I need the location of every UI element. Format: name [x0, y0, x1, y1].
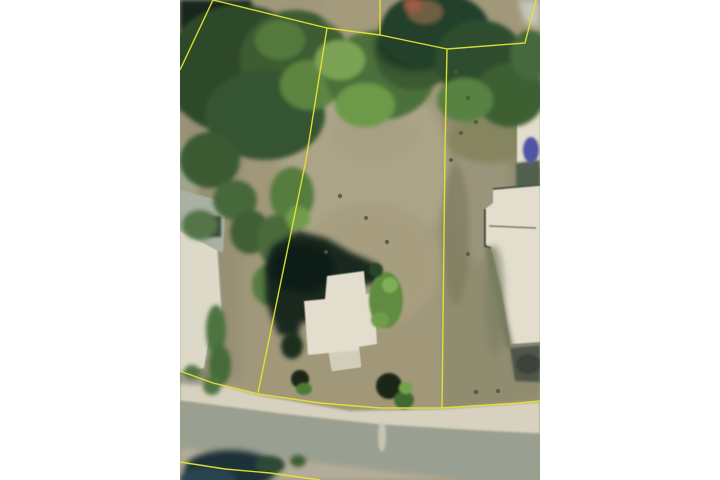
right-roof-gap-shadow — [516, 160, 540, 188]
aerial-photo[interactable] — [180, 0, 540, 480]
letterbox-right — [540, 0, 720, 480]
blue-object — [523, 137, 539, 163]
aerial-photo-canvas — [180, 0, 540, 480]
letterbox-left — [0, 0, 180, 480]
listing-photo-page — [0, 0, 720, 480]
roadside-mark — [378, 420, 386, 452]
